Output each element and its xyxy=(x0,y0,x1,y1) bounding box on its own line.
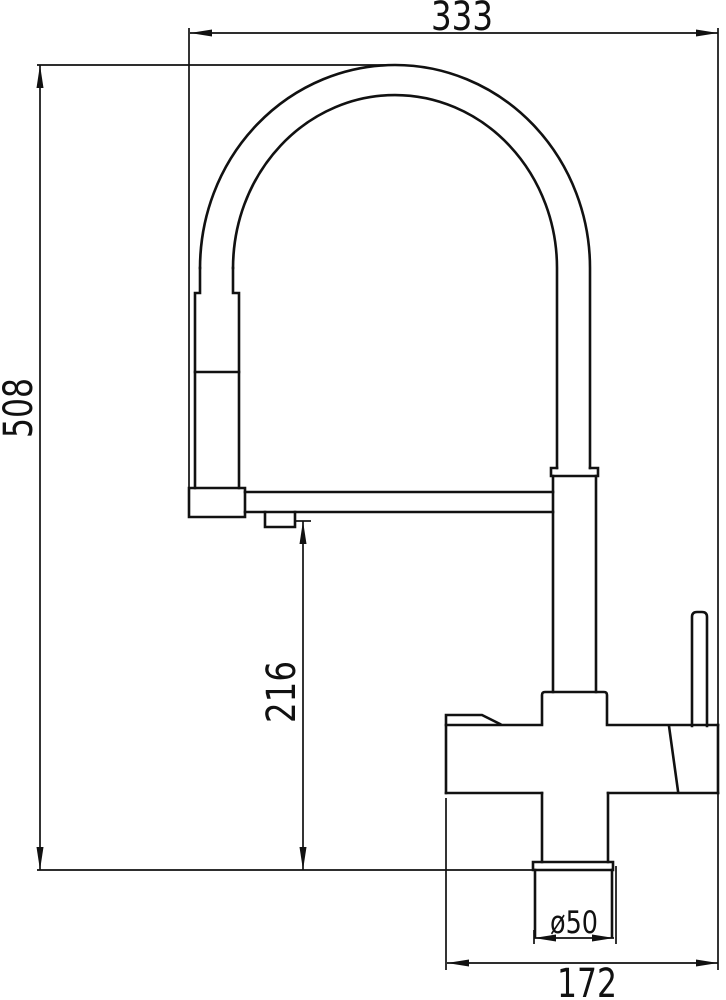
drawing-canvas: 333 508 216 ø50 xyxy=(0,0,726,1000)
arrowhead-top xyxy=(37,65,44,88)
aerator-nozzle xyxy=(265,512,295,527)
sprayer-head xyxy=(189,488,245,517)
dim-label-spout-clearance: 216 xyxy=(259,661,305,723)
dim-spout-clearance: 216 xyxy=(259,521,311,870)
dimension-annotations: 333 508 216 ø50 xyxy=(0,0,718,1000)
body-collar xyxy=(542,692,607,723)
mounting-stem xyxy=(542,793,608,862)
riser-body xyxy=(553,476,596,692)
faucet-drawing: 333 508 216 ø50 xyxy=(0,0,726,1000)
arrowhead-top xyxy=(300,521,307,544)
dim-base-diameter: ø50 xyxy=(534,866,616,944)
dim-overall-width: 333 xyxy=(189,0,718,970)
faucet-outline xyxy=(189,65,718,937)
dim-footprint-width: 172 xyxy=(446,798,718,1000)
handle-lever xyxy=(692,612,707,726)
left-port-cap xyxy=(446,715,500,793)
arrowhead-left xyxy=(447,960,469,967)
pull-down-hose-left xyxy=(195,268,200,488)
arrowhead-left xyxy=(190,30,212,37)
base-flange xyxy=(533,862,613,870)
spout-arch-inner xyxy=(233,95,557,468)
spout-arm xyxy=(245,492,553,512)
arrowhead-bottom xyxy=(300,847,307,870)
arrowhead-right xyxy=(696,30,718,37)
dim-label-overall-width: 333 xyxy=(431,0,493,40)
dim-label-footprint-width: 172 xyxy=(557,961,617,1000)
spout-arch-outer xyxy=(200,65,590,468)
arrowhead-right xyxy=(696,960,718,967)
handle-base xyxy=(669,725,718,793)
pull-down-hose-right xyxy=(233,268,239,488)
arrowhead-bottom xyxy=(37,847,44,870)
dim-label-base-diameter: ø50 xyxy=(550,905,598,941)
riser-flare xyxy=(551,468,598,476)
dim-label-overall-height: 508 xyxy=(0,378,42,438)
